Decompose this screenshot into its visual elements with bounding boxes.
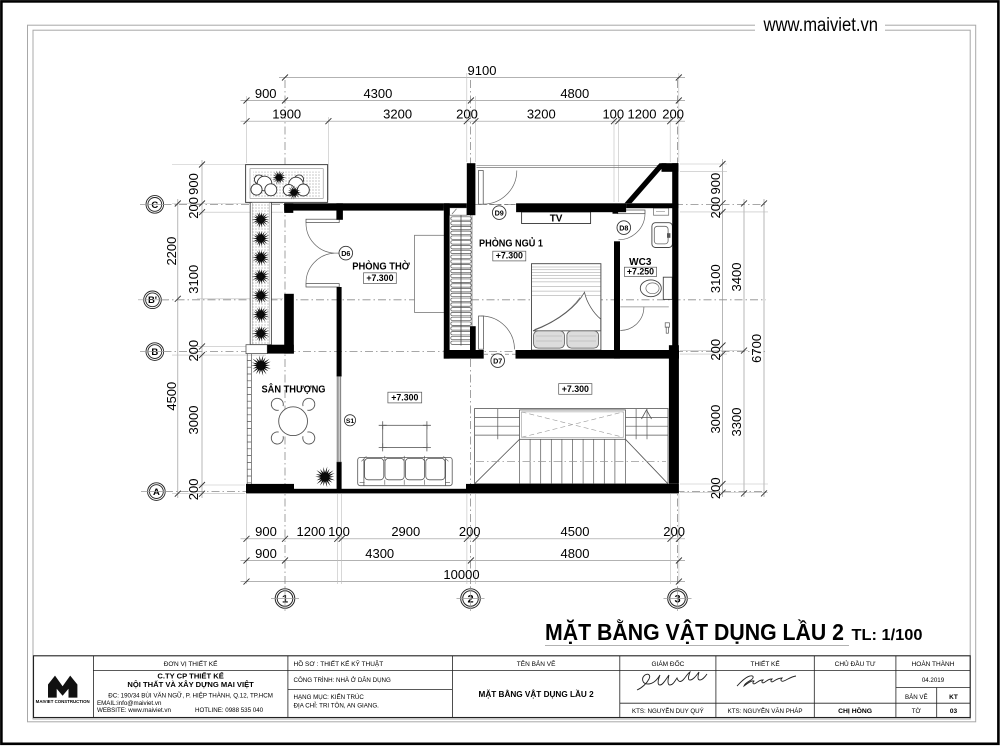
- svg-text:100: 100: [602, 107, 624, 122]
- svg-text:900: 900: [255, 86, 277, 101]
- svg-text:900: 900: [255, 546, 277, 561]
- svg-text:200: 200: [708, 197, 723, 219]
- svg-text:TỜ: TỜ: [912, 708, 922, 715]
- svg-text:+7.300: +7.300: [391, 392, 418, 402]
- svg-text:2900: 2900: [391, 524, 420, 539]
- svg-text:3100: 3100: [186, 265, 201, 294]
- svg-text:900: 900: [186, 173, 201, 195]
- svg-text:KTS: NGUYỄN DUY QUÝ: KTS: NGUYỄN DUY QUÝ: [632, 708, 704, 715]
- svg-text:03: 03: [950, 708, 958, 715]
- svg-text:SÂN THƯỢNG: SÂN THƯỢNG: [262, 382, 326, 395]
- svg-text:BẢN VẼ: BẢN VẼ: [905, 694, 928, 701]
- svg-text:EMAIL:info@maiviet.vn: EMAIL:info@maiviet.vn: [97, 700, 162, 707]
- svg-text:3100: 3100: [708, 264, 723, 293]
- svg-text:HOTLINE: 0988 535 040: HOTLINE: 0988 535 040: [195, 707, 264, 714]
- svg-text:3000: 3000: [186, 406, 201, 435]
- svg-text:200: 200: [186, 340, 201, 362]
- svg-text:4500: 4500: [164, 382, 179, 411]
- svg-text:+7.300: +7.300: [496, 251, 523, 261]
- svg-text:PHÒNG THỜ: PHÒNG THỜ: [352, 259, 410, 272]
- svg-text:D6: D6: [341, 249, 350, 258]
- svg-text:WEBSITE: www.maiviet.vn: WEBSITE: www.maiviet.vn: [97, 707, 171, 714]
- svg-text:+7.300: +7.300: [366, 273, 393, 283]
- svg-text:+7.300: +7.300: [562, 384, 589, 394]
- svg-text:2200: 2200: [164, 237, 179, 266]
- svg-text:900: 900: [255, 524, 277, 539]
- svg-text:HOÀN THÀNH: HOÀN THÀNH: [912, 659, 955, 668]
- svg-text:900: 900: [708, 173, 723, 195]
- svg-text:4500: 4500: [561, 524, 590, 539]
- svg-text:200: 200: [708, 477, 723, 499]
- svg-text:200: 200: [663, 524, 685, 539]
- svg-text:TV: TV: [550, 213, 563, 224]
- svg-text:ĐỊA CHỈ: TRI TÔN, AN GIANG.: ĐỊA CHỈ: TRI TÔN, AN GIANG.: [294, 703, 380, 710]
- svg-text:10000: 10000: [443, 567, 479, 582]
- svg-text:4300: 4300: [363, 86, 392, 101]
- svg-text:1900: 1900: [272, 107, 301, 122]
- svg-text:TÊN BẢN VẼ: TÊN BẢN VẼ: [517, 659, 556, 668]
- svg-text:3200: 3200: [383, 107, 412, 122]
- svg-text:1200: 1200: [297, 524, 326, 539]
- svg-text:04.2019: 04.2019: [922, 677, 945, 684]
- svg-text:MẶT BẰNG VẬT DỤNG LẦU 2: MẶT BẰNG VẬT DỤNG LẦU 2: [545, 618, 844, 645]
- svg-text:4800: 4800: [561, 546, 590, 561]
- svg-text:KTS: NGUYỄN VĂN PHÁP: KTS: NGUYỄN VĂN PHÁP: [728, 708, 803, 715]
- svg-text:D8: D8: [619, 223, 628, 232]
- svg-text:HẠNG MỤC: KIẾN TRÚC: HẠNG MỤC: KIẾN TRÚC: [294, 694, 365, 701]
- svg-text:200: 200: [186, 197, 201, 219]
- svg-text:KT: KT: [949, 694, 958, 701]
- svg-text:B': B': [148, 295, 157, 306]
- svg-text:9100: 9100: [468, 63, 497, 78]
- svg-text:3400: 3400: [729, 263, 744, 292]
- svg-text:200: 200: [186, 479, 201, 501]
- svg-text:+7.250: +7.250: [627, 267, 654, 277]
- svg-text:100: 100: [328, 524, 350, 539]
- svg-text:S1: S1: [346, 418, 355, 425]
- svg-text:TL: 1/100: TL: 1/100: [852, 627, 923, 644]
- svg-text:1200: 1200: [628, 107, 657, 122]
- svg-text:A: A: [153, 487, 160, 498]
- svg-text:D9: D9: [495, 208, 504, 217]
- svg-text:C: C: [151, 200, 158, 211]
- svg-text:6700: 6700: [749, 334, 764, 363]
- svg-text:MAIVIET CONSTRUCTION: MAIVIET CONSTRUCTION: [36, 699, 90, 704]
- svg-text:D7: D7: [493, 356, 502, 365]
- svg-text:CÔNG TRÌNH: NHÀ Ở DÂN DỤNG: CÔNG TRÌNH: NHÀ Ở DÂN DỤNG: [294, 677, 392, 684]
- svg-text:3300: 3300: [729, 408, 744, 437]
- svg-text:3200: 3200: [527, 107, 556, 122]
- svg-text:200: 200: [708, 339, 723, 361]
- svg-text:NỘI THẤT VÀ XÂY DỰNG MAI VIỆT: NỘI THẤT VÀ XÂY DỰNG MAI VIỆT: [127, 679, 254, 689]
- svg-text:ĐC: 190/34 BÙI VĂN NGỮ, P. HIỆ: ĐC: 190/34 BÙI VĂN NGỮ, P. HIỆP THÀNH, Q…: [108, 692, 273, 700]
- svg-text:MẶT BẰNG VẬT DỤNG LẦU 2: MẶT BẰNG VẬT DỤNG LẦU 2: [479, 688, 595, 699]
- svg-text:200: 200: [456, 107, 478, 122]
- svg-text:4800: 4800: [560, 86, 589, 101]
- svg-text:200: 200: [459, 524, 481, 539]
- svg-text:PHÒNG NGỦ 1: PHÒNG NGỦ 1: [479, 237, 543, 250]
- svg-text:C.TY CP THIẾT KẾ: C.TY CP THIẾT KẾ: [157, 671, 223, 681]
- svg-text:B: B: [151, 347, 158, 358]
- svg-text:www.maiviet.vn: www.maiviet.vn: [763, 15, 878, 36]
- svg-text:4300: 4300: [365, 546, 394, 561]
- svg-text:3000: 3000: [708, 405, 723, 434]
- svg-text:200: 200: [662, 107, 684, 122]
